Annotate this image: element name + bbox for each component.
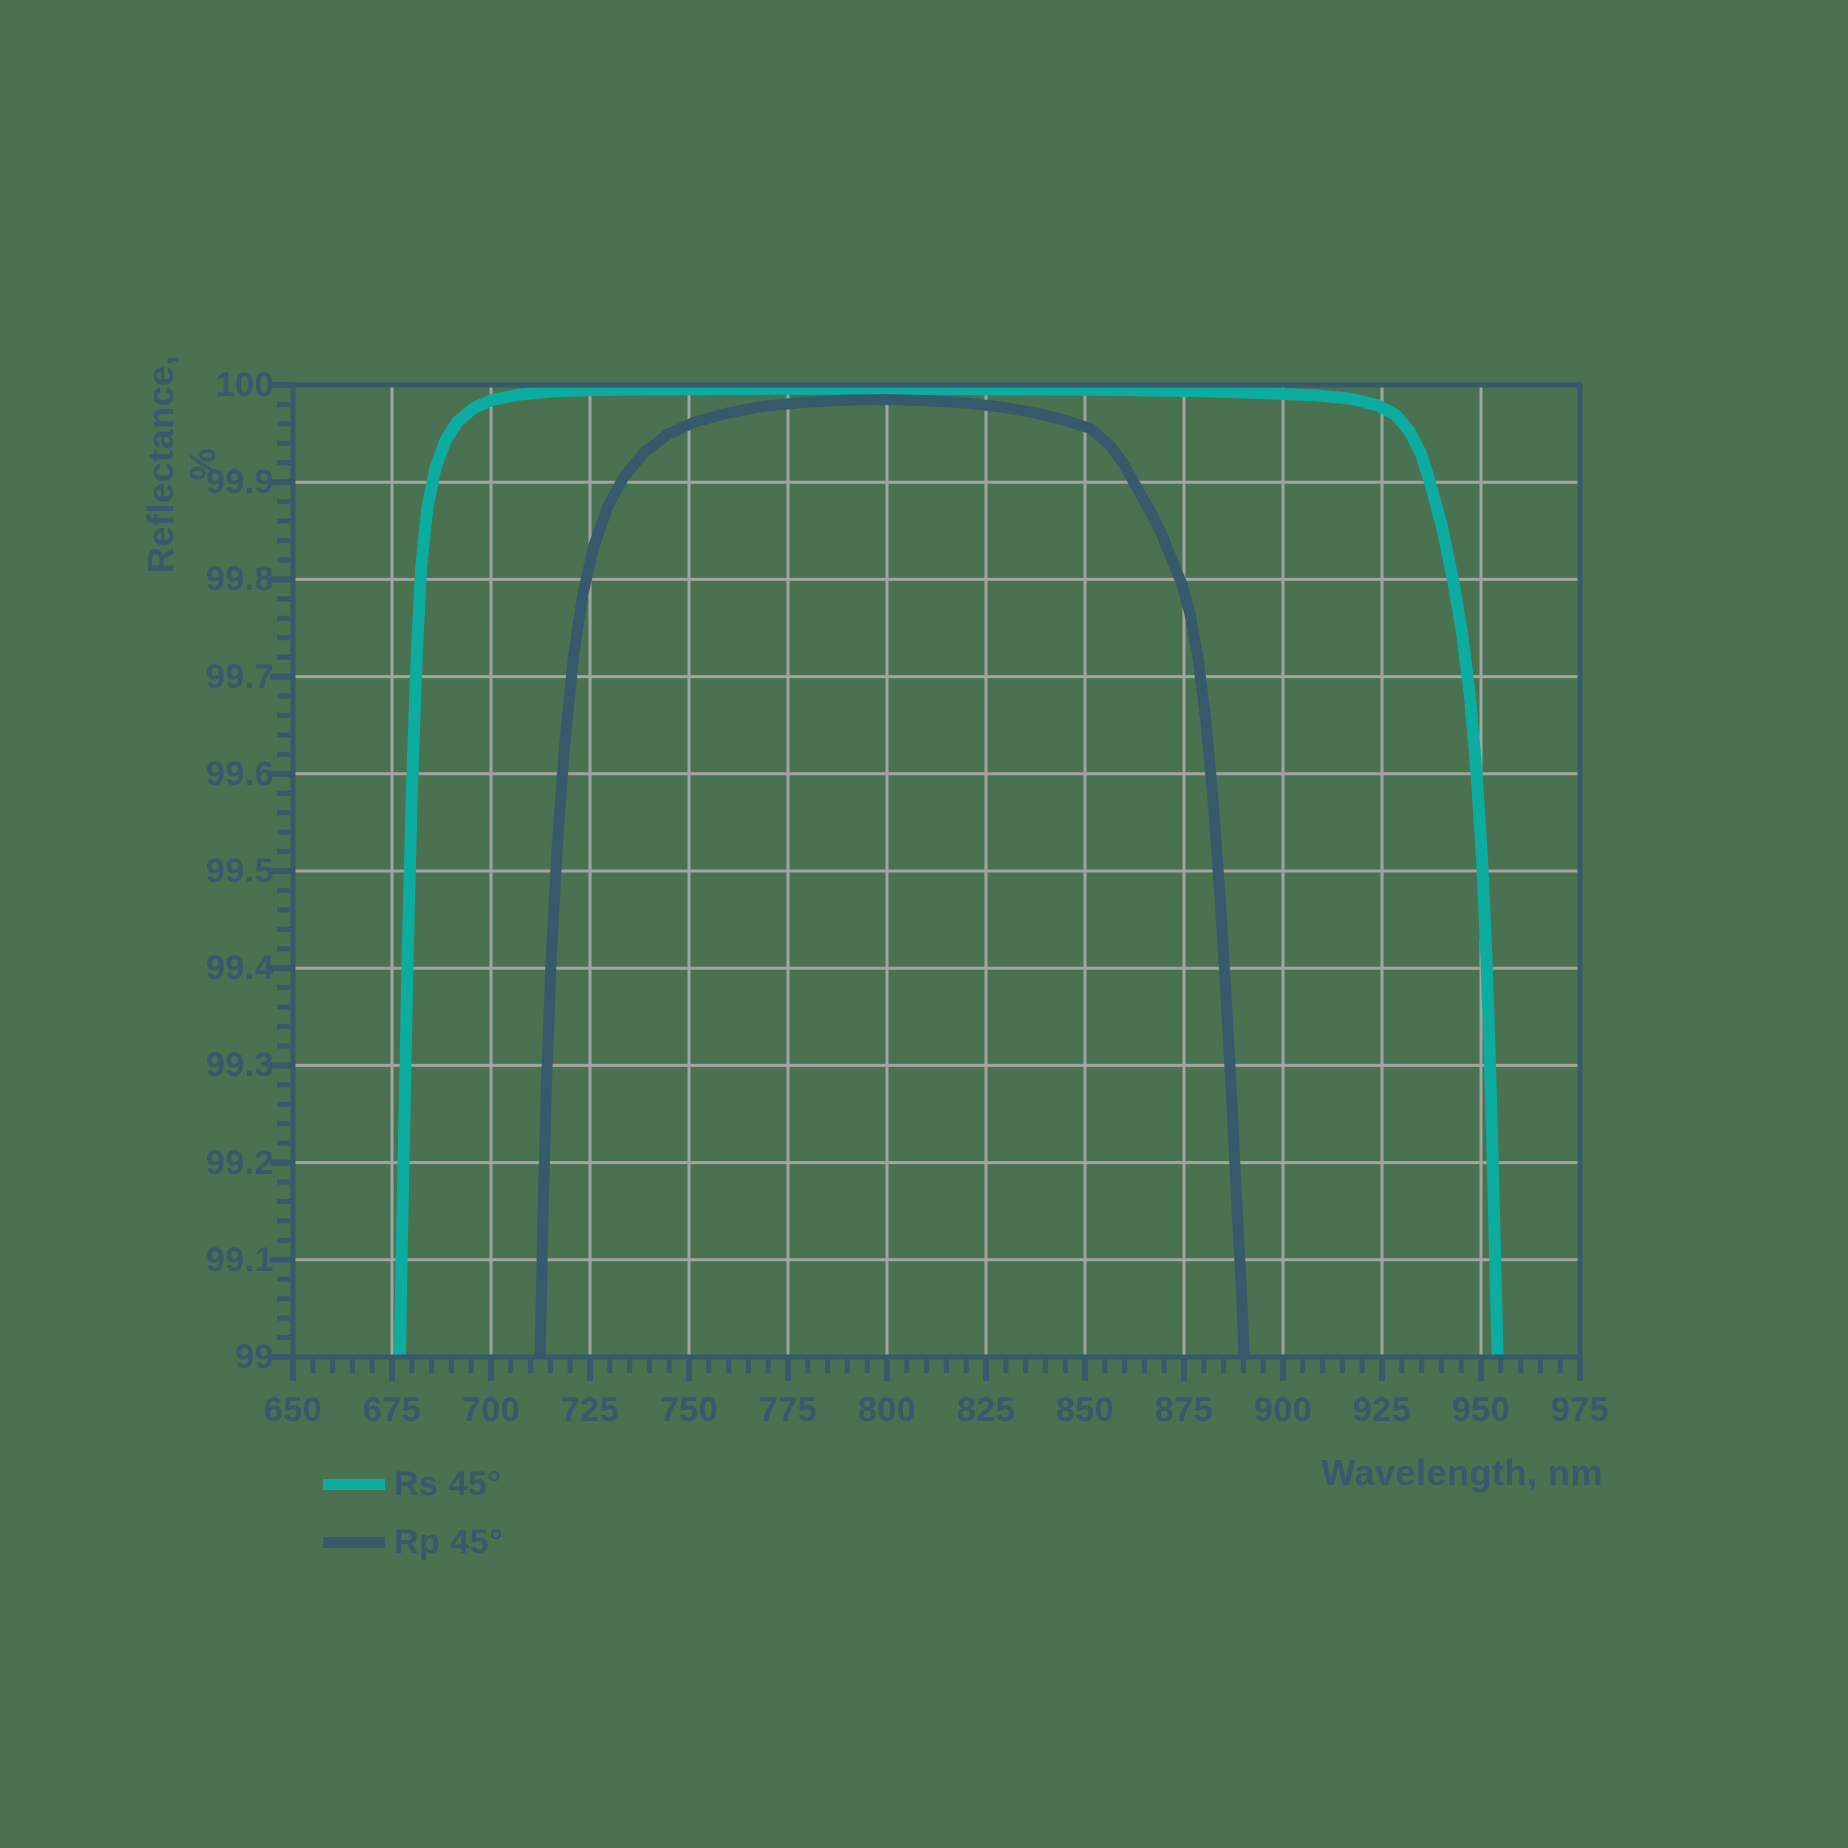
x-tick-label: 975	[1530, 1392, 1630, 1428]
legend-label-rs-45: Rs 45°	[394, 1465, 501, 1504]
y-tick-label: 99.1	[144, 1242, 274, 1278]
y-tick-label: 99.5	[144, 853, 274, 889]
y-tick-label: 99.6	[144, 756, 274, 792]
x-tick-label: 725	[540, 1392, 640, 1428]
curve-rp-45-	[540, 400, 1244, 1357]
x-tick-label: 925	[1332, 1392, 1432, 1428]
x-tick-label: 900	[1233, 1392, 1333, 1428]
x-tick-label: 825	[936, 1392, 1036, 1428]
curve-rs-45-	[400, 389, 1498, 1357]
x-tick-label: 650	[243, 1392, 343, 1428]
x-tick-label: 950	[1431, 1392, 1531, 1428]
y-tick-label: 99	[144, 1339, 274, 1375]
y-tick-label: 99.2	[144, 1145, 274, 1181]
chart-canvas	[0, 0, 1848, 1848]
x-tick-label: 700	[441, 1392, 541, 1428]
x-tick-label: 750	[639, 1392, 739, 1428]
x-tick-label: 775	[738, 1392, 838, 1428]
x-tick-label: 675	[342, 1392, 442, 1428]
legend-label-rp-45: Rp 45°	[394, 1523, 503, 1562]
legend-item-rp-45: Rp 45°	[323, 1520, 503, 1564]
legend-item-rs-45: Rs 45°	[323, 1462, 503, 1506]
legend-swatch-rp-45	[323, 1537, 385, 1548]
x-tick-label: 850	[1035, 1392, 1135, 1428]
y-tick-label: 99.7	[144, 659, 274, 695]
x-tick-label: 800	[837, 1392, 937, 1428]
y-tick-label: 99.4	[144, 950, 274, 986]
x-axis-title: Wavelength, nm	[1200, 1452, 1603, 1494]
legend-swatch-rs-45	[323, 1479, 385, 1490]
legend: Rs 45° Rp 45°	[323, 1462, 503, 1578]
chart-figure: 100 99.9 99.8 99.7 99.6 99.5 99.4 99.3 9…	[0, 0, 1848, 1848]
x-tick-label: 875	[1134, 1392, 1234, 1428]
page-root: { "page": { "background_color": "#4A7150…	[0, 0, 1848, 1848]
y-axis-title: Reflectance, %	[140, 334, 180, 594]
y-tick-label: 99.3	[144, 1047, 274, 1083]
